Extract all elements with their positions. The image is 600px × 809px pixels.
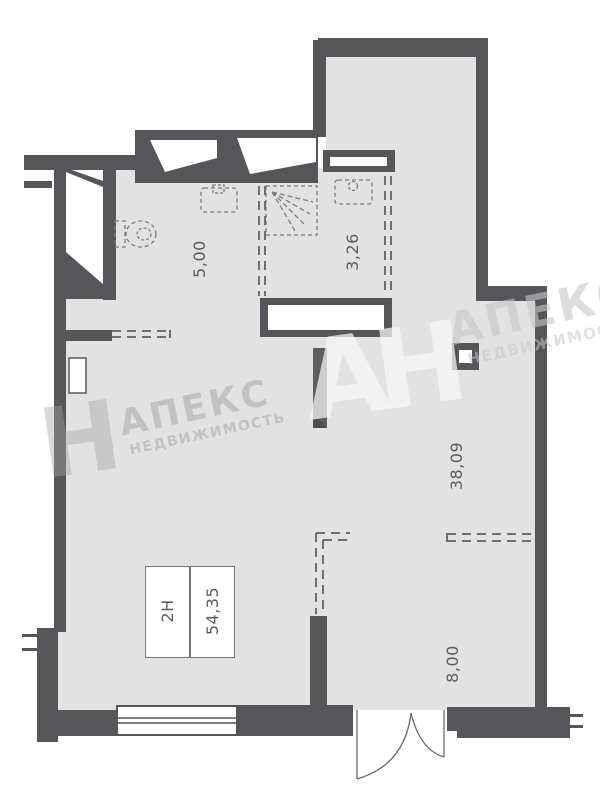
area-label-entrance-zone: 8,00 — [442, 622, 462, 706]
unit-number-label: 2Н — [157, 569, 177, 653]
entrance-door — [357, 710, 444, 779]
unit-stamp-divider — [189, 567, 191, 657]
inwall-window — [330, 157, 387, 166]
window-bottom — [117, 706, 237, 735]
area-label-main-room: 38,09 — [446, 424, 466, 508]
column-inner — [459, 350, 472, 363]
duct-shaft-inner — [268, 305, 384, 330]
floor-plan-drawing — [0, 0, 600, 809]
unit-area-label: 54,35 — [202, 569, 222, 653]
area-label-bathroom: 5,00 — [189, 217, 209, 301]
interior-stub-wall — [313, 348, 327, 428]
area-label-shower-room: 3,26 — [342, 210, 362, 294]
floor-plan: 5,00 3,26 38,09 8,00 2Н 54,35 Н АПЕКС НЕ… — [0, 0, 600, 809]
radiator — [69, 358, 86, 393]
